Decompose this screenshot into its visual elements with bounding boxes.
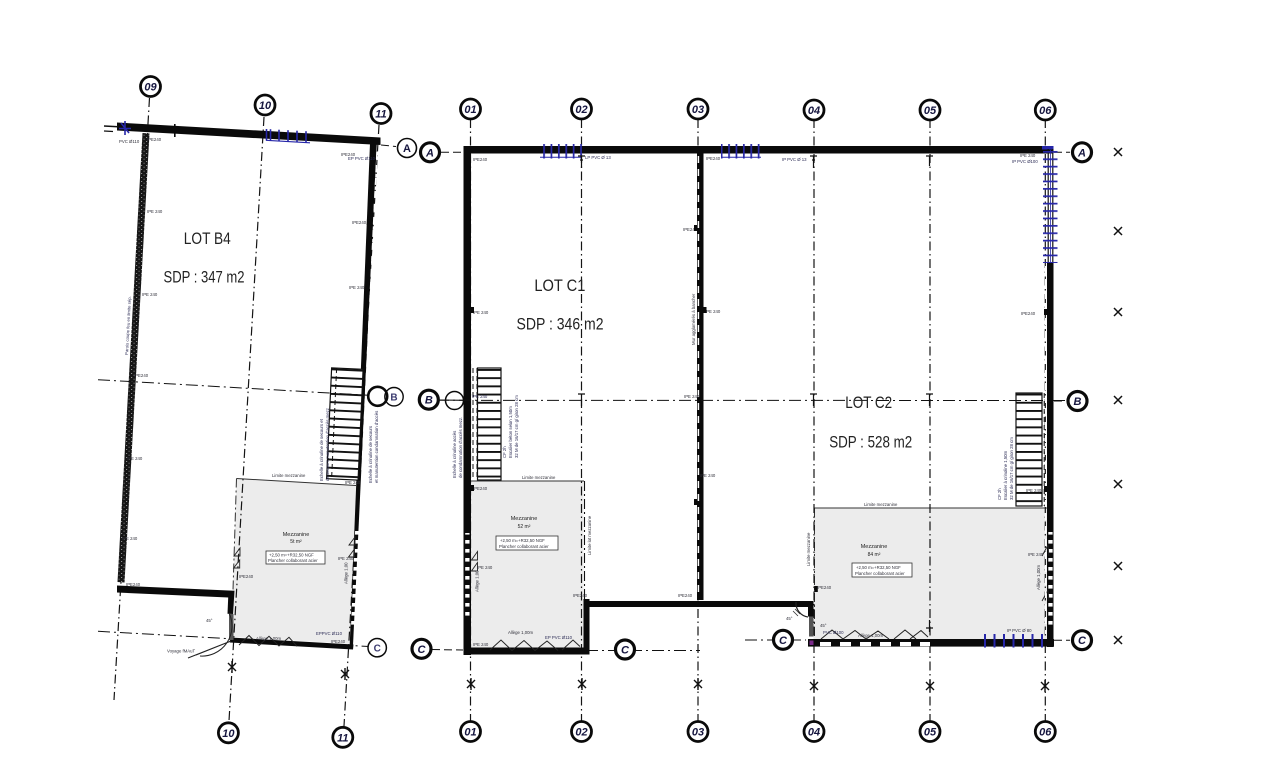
svg-text:+2,50 m=+R32,50 NGF: +2,50 m=+R32,50 NGF — [500, 538, 545, 543]
svg-text:IPE240: IPE240 — [473, 486, 488, 491]
svg-text:A: A — [1077, 147, 1086, 159]
svg-text:EP PVC Ø110: EP PVC Ø110 — [545, 635, 573, 640]
svg-text:Allège 1,00: Allège 1,00 — [344, 562, 349, 584]
svg-text:Limite mezzanine: Limite mezzanine — [522, 475, 556, 480]
svg-text:05: 05 — [924, 105, 937, 117]
svg-text:Voyage fMAuT: Voyage fMAuT — [167, 649, 196, 654]
svg-text:Allège 1,00m: Allège 1,00m — [256, 636, 282, 641]
svg-text:IPE 240: IPE 240 — [345, 480, 361, 485]
svg-text:CF 2h: CF 2h — [502, 446, 507, 458]
svg-text:IPE 240: IPE 240 — [472, 394, 488, 399]
svg-text:PVC Ø110: PVC Ø110 — [119, 139, 140, 144]
svg-text:A: A — [403, 143, 411, 155]
svg-text:IPE 240: IPE 240 — [122, 536, 138, 541]
svg-text:LP PVC Ø 13: LP PVC Ø 13 — [585, 155, 611, 160]
svg-text:IPE240: IPE240 — [473, 157, 488, 162]
svg-text:Escalier béton selon 1,50m: Escalier béton selon 1,50m — [508, 406, 513, 458]
svg-text:Limite lot mezzanine: Limite lot mezzanine — [587, 515, 592, 555]
svg-text:IPE240: IPE240 — [678, 593, 693, 598]
svg-text:EP PVC Ø110: EP PVC Ø110 — [348, 156, 376, 161]
svg-text:Mezzanine: Mezzanine — [511, 516, 538, 522]
svg-text:IP PVC Ø100: IP PVC Ø100 — [1012, 159, 1038, 164]
svg-text:A: A — [425, 147, 434, 159]
svg-text:Mezzanine: Mezzanine — [861, 544, 888, 550]
svg-text:IPE240: IPE240 — [573, 593, 588, 598]
svg-text:IP PVC Ø 13: IP PVC Ø 13 — [782, 157, 807, 162]
svg-text:IPE 240: IPE 240 — [473, 310, 489, 315]
svg-text:et manutention condamnation d: et manutention condamnation d'accès — [374, 411, 379, 483]
svg-text:IPE 240: IPE 240 — [147, 209, 163, 214]
svg-text:5t m²: 5t m² — [290, 539, 302, 545]
svg-text:Echelle à crinoline de secours: Echelle à crinoline de secours et — [319, 418, 324, 481]
svg-text:Limite mezzanine: Limite mezzanine — [806, 532, 811, 566]
svg-text:Allège 1,00m: Allège 1,00m — [858, 633, 884, 638]
svg-text:45°: 45° — [786, 616, 793, 621]
svg-text:03: 03 — [692, 104, 704, 116]
svg-text:IPE 240: IPE 240 — [127, 456, 143, 461]
svg-text:01: 01 — [464, 727, 476, 739]
svg-text:IPE240: IPE240 — [331, 639, 346, 644]
svg-text:IPE 240: IPE 240 — [1020, 153, 1036, 158]
svg-text:Echelle à crinoline de secours: Echelle à crinoline de secours — [368, 426, 373, 483]
svg-text:06: 06 — [1039, 727, 1052, 739]
svg-text:04: 04 — [808, 105, 820, 117]
svg-text:IPE240: IPE240 — [706, 156, 721, 161]
svg-text:IPE240: IPE240 — [239, 574, 254, 579]
svg-text:IPE240: IPE240 — [817, 585, 832, 590]
svg-text:B: B — [1074, 396, 1082, 408]
svg-text:32 M de 16/17 cm g/ giron 28 c: 32 M de 16/17 cm g/ giron 28 cm — [1009, 437, 1014, 500]
svg-text:B: B — [390, 393, 397, 404]
svg-text:84 m²: 84 m² — [868, 552, 881, 558]
svg-text:Plancher collaborant acier: Plancher collaborant acier — [268, 558, 318, 563]
svg-text:IPE 240: IPE 240 — [684, 394, 700, 399]
svg-text:01: 01 — [464, 104, 476, 116]
svg-text:IPE 240: IPE 240 — [705, 309, 721, 314]
svg-text:CF 2h: CF 2h — [997, 488, 1002, 500]
svg-text:Plancher collaborant acier: Plancher collaborant acier — [499, 544, 549, 549]
svg-text:06: 06 — [1039, 105, 1052, 117]
svg-text:IPE 240: IPE 240 — [473, 642, 489, 647]
svg-text:de condamnation d'accès mezz.: de condamnation d'accès mezz. — [458, 417, 463, 478]
svg-text:C: C — [374, 644, 381, 655]
svg-text:04: 04 — [808, 727, 820, 739]
svg-text:+2,50 m=+R32,50 NGF: +2,50 m=+R32,50 NGF — [856, 565, 901, 570]
svg-text:IPE 240: IPE 240 — [700, 473, 716, 478]
svg-text:LOT B4: LOT B4 — [184, 229, 231, 248]
svg-text:IPE240: IPE240 — [147, 137, 162, 142]
svg-text:LOT C2: LOT C2 — [845, 393, 892, 412]
svg-text:52 m²: 52 m² — [518, 524, 531, 530]
svg-text:Mur agglomérés à bancher: Mur agglomérés à bancher — [691, 293, 696, 345]
svg-text:IPE240: IPE240 — [126, 582, 141, 587]
svg-text:45°: 45° — [820, 623, 827, 628]
svg-text:IPE 240: IPE 240 — [142, 292, 158, 297]
svg-text:IPE240: IPE240 — [352, 220, 367, 225]
svg-text:C: C — [1078, 635, 1087, 647]
svg-text:+2,50 m=+R32,50 NGF: +2,50 m=+R32,50 NGF — [269, 553, 314, 558]
svg-text:Limite mezzanine: Limite mezzanine — [864, 502, 898, 507]
svg-text:Allège 1,00m: Allège 1,00m — [1036, 564, 1041, 590]
svg-text:IPE240: IPE240 — [1021, 311, 1036, 316]
svg-text:SDP : 346 m2: SDP : 346 m2 — [517, 315, 604, 334]
svg-text:IPE 240: IPE 240 — [1028, 552, 1044, 557]
svg-text:45°: 45° — [206, 618, 213, 623]
svg-text:IPE 240: IPE 240 — [349, 285, 365, 290]
svg-text:10: 10 — [222, 728, 235, 740]
svg-text:IPE 240: IPE 240 — [1026, 488, 1042, 493]
svg-text:LOT C1: LOT C1 — [534, 276, 585, 295]
svg-text:B: B — [425, 395, 433, 407]
svg-text:11: 11 — [375, 109, 386, 121]
svg-text:10: 10 — [259, 100, 272, 112]
svg-text:32 M de 16/17 cm g/ giron 28 c: 32 M de 16/17 cm g/ giron 28 cm — [514, 395, 519, 458]
svg-text:Escalier à crinoline 1,50m: Escalier à crinoline 1,50m — [1003, 450, 1008, 500]
svg-text:IPE 240: IPE 240 — [338, 556, 354, 561]
svg-text:IP PVC Ø 80: IP PVC Ø 80 — [1007, 628, 1032, 633]
svg-text:Allège 1,00m: Allège 1,00m — [508, 630, 534, 635]
svg-text:Plancher collaborant acier: Plancher collaborant acier — [855, 571, 905, 576]
svg-text:de secours manutention d'accès: de secours manutention d'accès mezz — [325, 408, 330, 481]
svg-text:05: 05 — [924, 727, 937, 739]
svg-text:C: C — [779, 635, 788, 647]
svg-text:Mezzanine: Mezzanine — [283, 532, 310, 538]
svg-text:11: 11 — [337, 732, 348, 744]
svg-text:03: 03 — [692, 727, 704, 739]
svg-text:Allège 1,00: Allège 1,00 — [475, 570, 480, 592]
svg-text:02: 02 — [575, 727, 587, 739]
svg-text:IPE240: IPE240 — [134, 373, 149, 378]
svg-text:IPE 240: IPE 240 — [477, 565, 493, 570]
svg-text:PVC Ø100: PVC Ø100 — [823, 630, 844, 635]
svg-text:02: 02 — [575, 104, 587, 116]
svg-text:09: 09 — [144, 82, 157, 94]
svg-text:C: C — [621, 645, 630, 657]
svg-text:C: C — [418, 644, 427, 656]
svg-text:SDP : 528 m2: SDP : 528 m2 — [829, 433, 912, 452]
svg-text:SDP : 347 m2: SDP : 347 m2 — [164, 268, 245, 287]
svg-text:Echelle à crinoline accès: Echelle à crinoline accès — [452, 431, 457, 478]
svg-text:Limite mezzanine: Limite mezzanine — [272, 473, 306, 478]
svg-text:EPPVC Ø110: EPPVC Ø110 — [316, 631, 343, 636]
